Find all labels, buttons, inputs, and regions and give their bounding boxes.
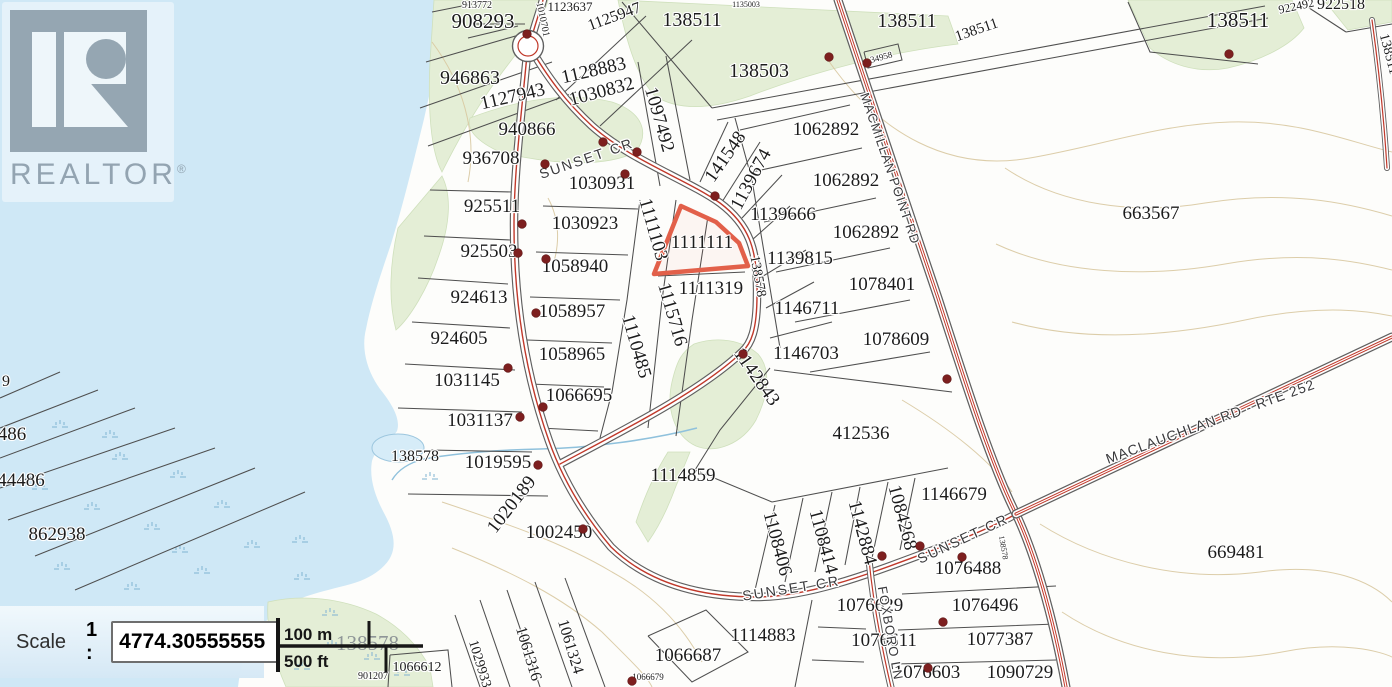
civic-address-dot [939,618,948,627]
civic-address-dot [711,192,720,201]
parcel-label: 1031137 [447,410,513,431]
parcel-label: 138511 [662,9,721,31]
parcel-label: 44486 [0,470,45,491]
parcel-label: 1030923 [552,213,619,234]
scale-bar-metric-label: 100 m [284,625,332,644]
civic-address-dot [1225,50,1234,59]
civic-address-dot [739,350,748,359]
parcel-label: 1139666 [750,204,816,225]
map-canvas[interactable]: 9137729082931010701112363711259471135003… [0,0,1392,687]
civic-address-dot [943,375,952,384]
parcel-label: 1062892 [793,119,860,140]
parcel-label: 1090729 [987,662,1054,683]
parcel-label: 1146679 [921,484,987,505]
civic-address-dot [534,461,543,470]
civic-address-dot [504,364,513,373]
parcel-label: 1031145 [434,370,500,391]
parcel-label: 138503 [729,60,789,82]
parcel-label: 1062892 [813,170,880,191]
parcel-label: 925503 [461,241,518,262]
parcel-label: 925511 [464,196,520,217]
realtor-logo-icon [2,2,174,158]
parcel-label: 1066679 [632,672,664,682]
scale-ratio-prefix: 1 : [86,619,97,665]
civic-address-dot [916,542,925,551]
civic-address-dot [633,148,642,157]
parcel-label: 9 [2,373,10,390]
civic-address-dot [516,413,525,422]
scale-control: Scale 1 : [0,606,264,678]
civic-address-dot [541,160,550,169]
parcel-label: 1078401 [849,274,916,295]
parcel-label: 1077387 [967,629,1034,650]
parcel-label: 1019595 [465,452,532,473]
parcel-label: 1111111 [671,232,733,253]
civic-address-dot [599,138,608,147]
parcel-label: 1076496 [952,595,1019,616]
parcel-label: 924605 [431,328,488,349]
civic-address-dot [621,170,630,179]
parcel-label: 1066687 [655,645,722,666]
civic-address-dot [518,220,527,229]
parcel-label: 663567 [1123,203,1180,224]
parcel-label: 1146703 [773,343,839,364]
civic-address-dot [825,53,834,62]
parcel-label: 940866 [499,119,556,140]
civic-address-dot [532,309,541,318]
parcel-label: 1139815 [767,248,833,269]
parcel-label: 1114883 [730,625,795,646]
parcel-label: 1058965 [539,344,606,365]
parcel-label: 922518 [1317,0,1365,13]
parcel-label: 1066695 [546,385,613,406]
civic-address-dot [542,255,551,264]
civic-address-dot [514,249,523,258]
parcel-label: 1146711 [774,298,839,319]
civic-address-dot [628,677,637,686]
realtor-logo-watermark: REALTOR® [2,2,174,202]
parcel-label: 1062892 [833,222,900,243]
parcel-label: 936708 [463,148,520,169]
map-viewer: 9137729082931010701112363711259471135003… [0,0,1392,687]
parcel-label: 924613 [451,287,508,308]
civic-address-dot [878,552,887,561]
parcel-label: 138511 [877,10,936,32]
scale-value-input[interactable] [111,621,279,663]
parcel-label: 1058957 [539,301,606,322]
scale-bar-imperial-label: 500 ft [284,652,329,671]
parcel-label: 1114859 [650,465,715,486]
scale-label: Scale [16,631,66,654]
parcel-label: 862938 [29,524,86,545]
parcel-label: 1078609 [863,329,930,350]
parcel-label: 908293 [452,9,515,33]
parcel-label: 1058940 [542,256,609,277]
parcel-label: 1111319 [679,278,743,299]
parcel-label: 138511 [1207,8,1269,32]
parcel-label: 412536 [833,423,890,444]
civic-address-dot [523,30,532,39]
civic-address-dot [924,664,933,673]
parcel-label: 669481 [1208,542,1265,563]
civic-address-dot [579,525,588,534]
parcel-label: 486 [0,424,26,445]
civic-address-dot [539,403,548,412]
parcel-label: 1135003 [732,0,760,9]
realtor-logo-text: REALTOR® [10,158,186,192]
scale-bar: 138578 100 m 500 ft [270,608,445,686]
civic-address-dot [863,59,872,68]
parcel-label: 946863 [440,67,500,89]
parcel-label: 1123637 [547,0,593,14]
parcel-label: 1076488 [935,558,1002,579]
civic-address-dot [958,553,967,562]
parcel-label: 138578 [391,448,439,465]
